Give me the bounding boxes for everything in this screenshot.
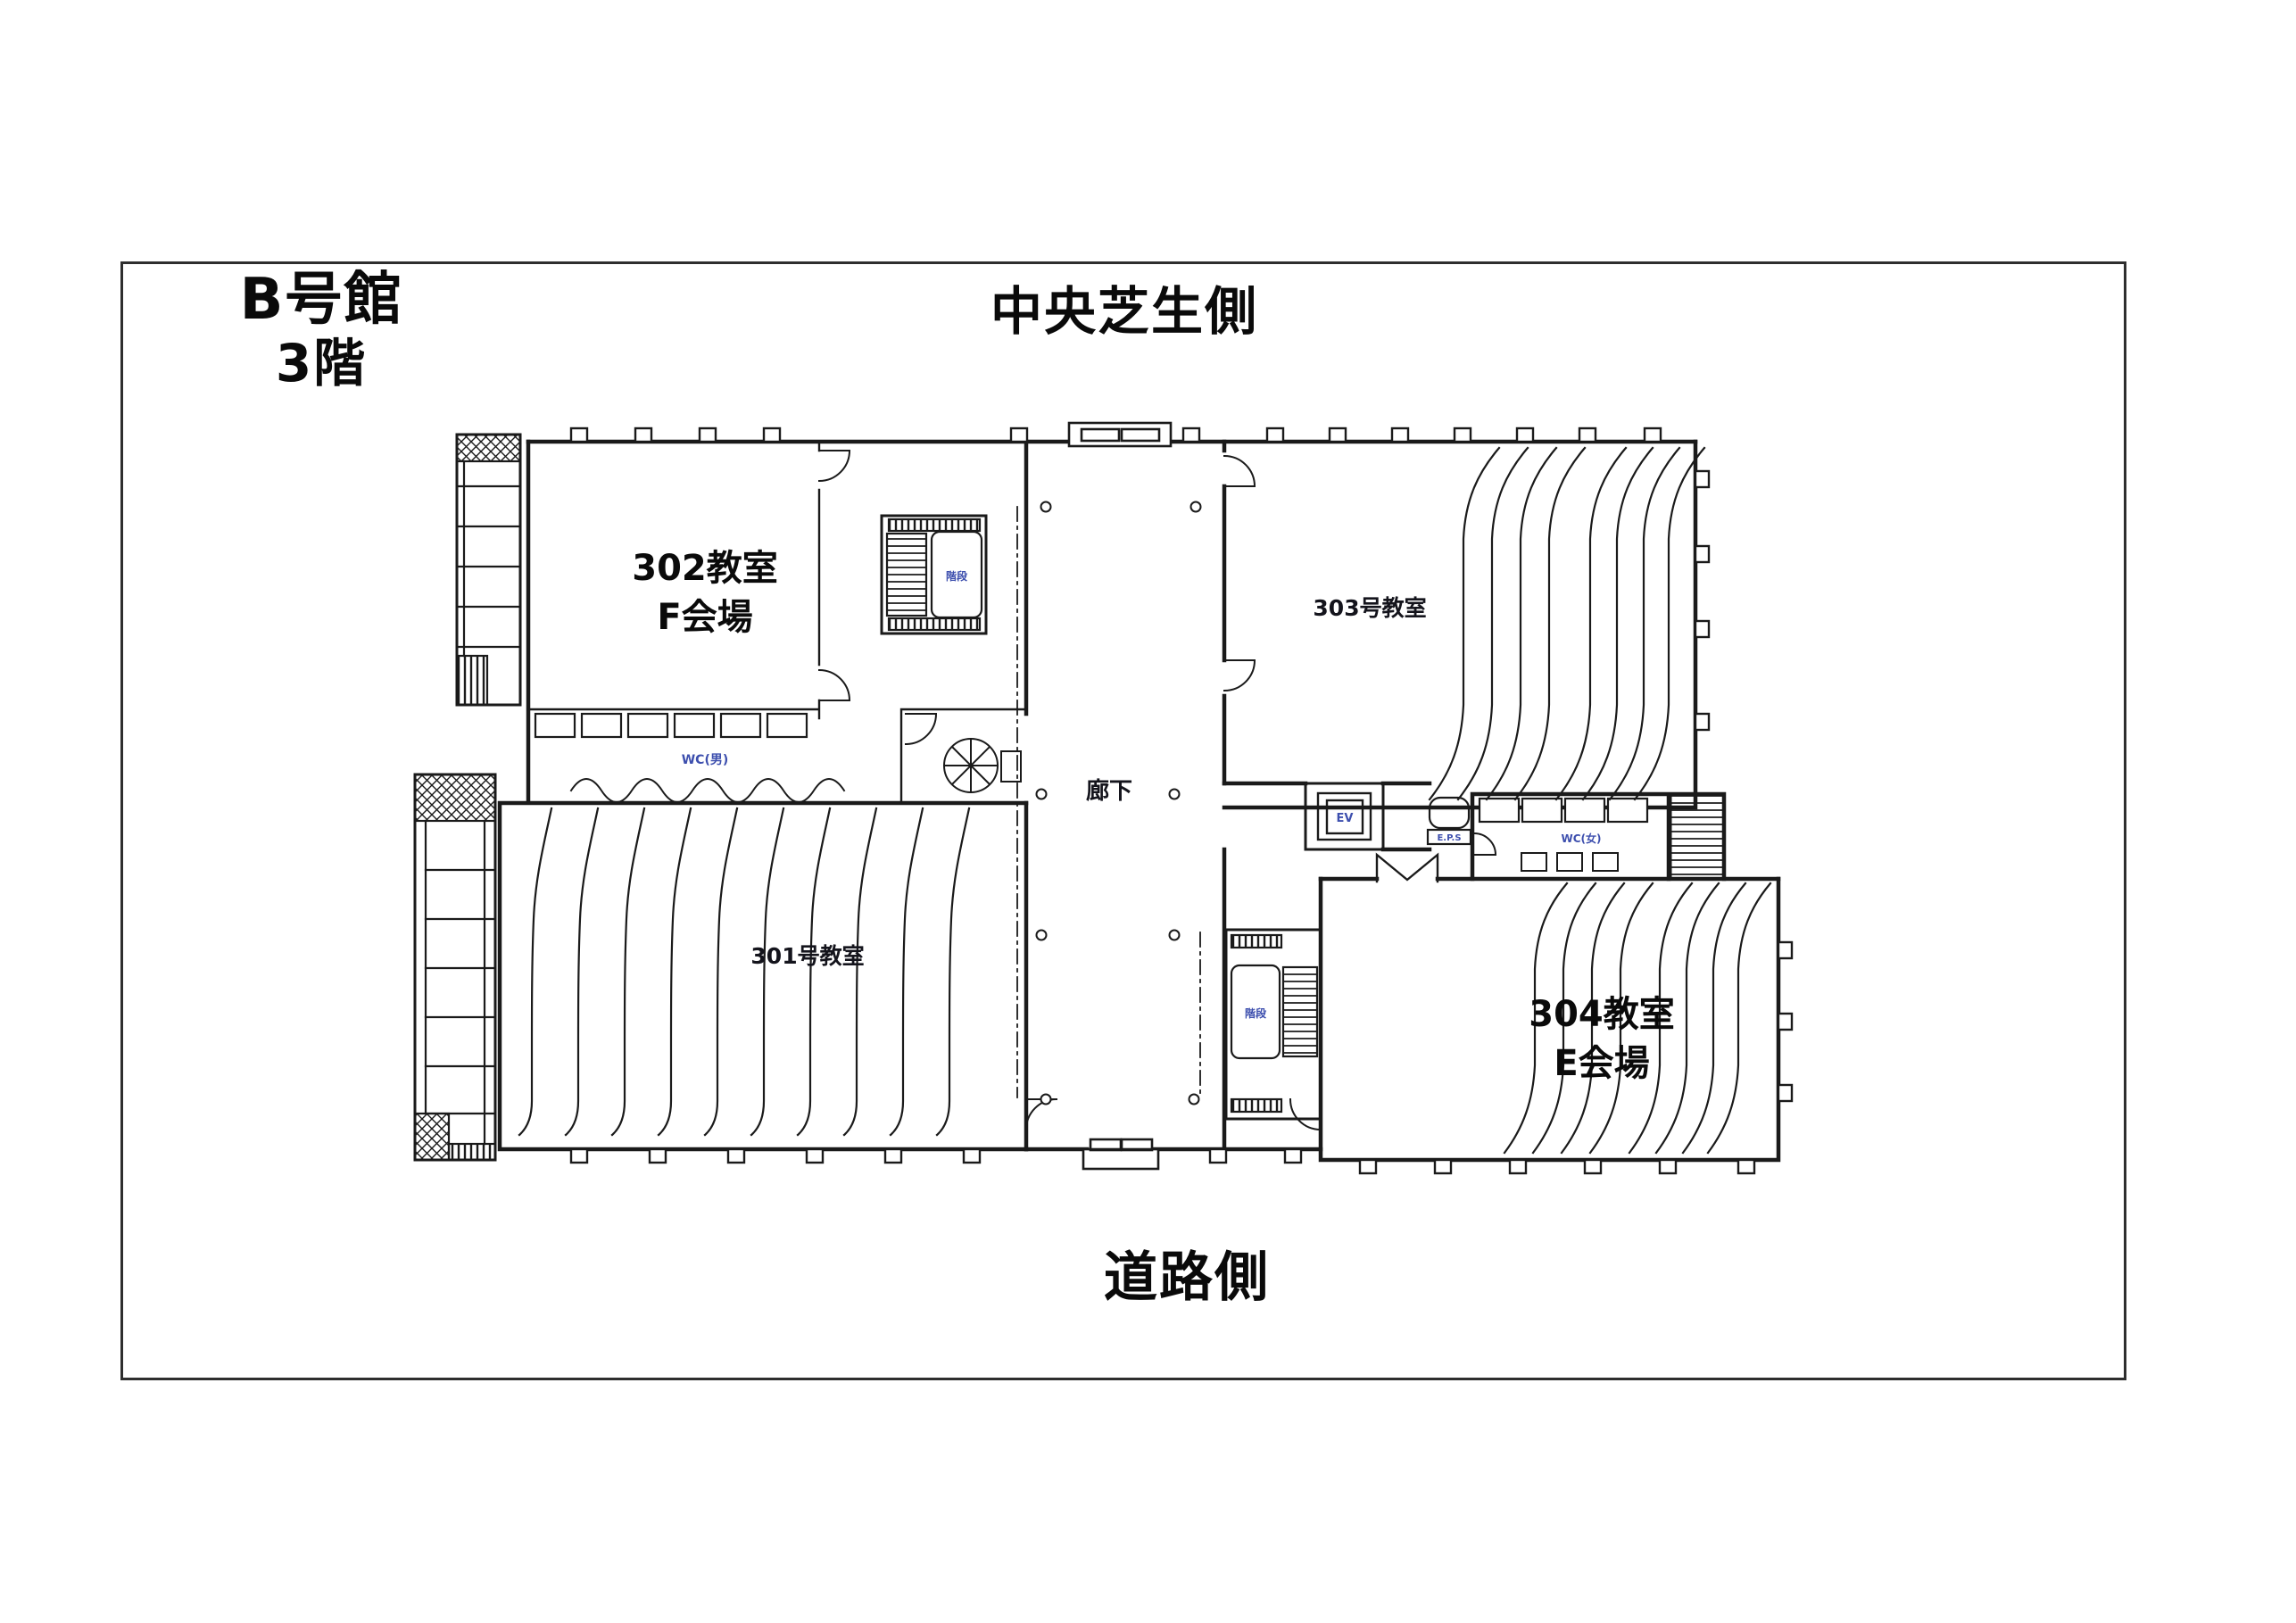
stairs-lower-label: 階段 (1245, 1006, 1267, 1020)
corridor-label: 廊下 (1086, 778, 1132, 805)
room301-label: 301号教室 (750, 943, 864, 969)
eps-label: E.P.S (1437, 833, 1461, 843)
stairs-upper-label: 階段 (946, 569, 968, 583)
room303-label: 303号教室 (1313, 595, 1426, 621)
entrance-bottom (1083, 1139, 1158, 1169)
orientation-bottom-label: 道路側 (1031, 1247, 1343, 1309)
building-floor: 3階 (156, 334, 486, 393)
wc-left-block (535, 714, 1021, 802)
hatch-band (1670, 794, 1724, 879)
seat-rows-303 (1430, 448, 1704, 799)
wc-left-label: WC(男) (682, 753, 729, 767)
elevator-label: EV (1337, 812, 1354, 825)
wc-right-label: WC(女) (1561, 832, 1601, 845)
wc-right-block (1480, 794, 1724, 879)
room302-label-line2: F会場 (657, 597, 752, 638)
seat-rows-301 (519, 808, 969, 1135)
orientation-top-label: 中央芝生側 (946, 282, 1303, 342)
room302-label-line1: 302教室 (632, 548, 778, 589)
room304-label-line2: E会場 (1554, 1043, 1649, 1084)
stairwell-lower (1226, 930, 1321, 1119)
balcony-upper-left (457, 435, 520, 705)
room304-label-line1: 304教室 (1529, 994, 1675, 1035)
page: { "page": { "building": { "line1": "B号館"… (0, 0, 2296, 1623)
balcony-lower-left (415, 774, 495, 1160)
urinal-row (571, 779, 844, 802)
stairwell-upper (882, 516, 986, 633)
building-title: B号館 3階 (156, 268, 486, 393)
floor-plan-drawing: 302教室 F会場 303号教室 301号教室 304教室 E会場 廊下 階段 … (393, 410, 1820, 1222)
building-name: B号館 (156, 268, 486, 334)
double-door-304 (1377, 855, 1438, 882)
entrance-top (1069, 423, 1171, 446)
